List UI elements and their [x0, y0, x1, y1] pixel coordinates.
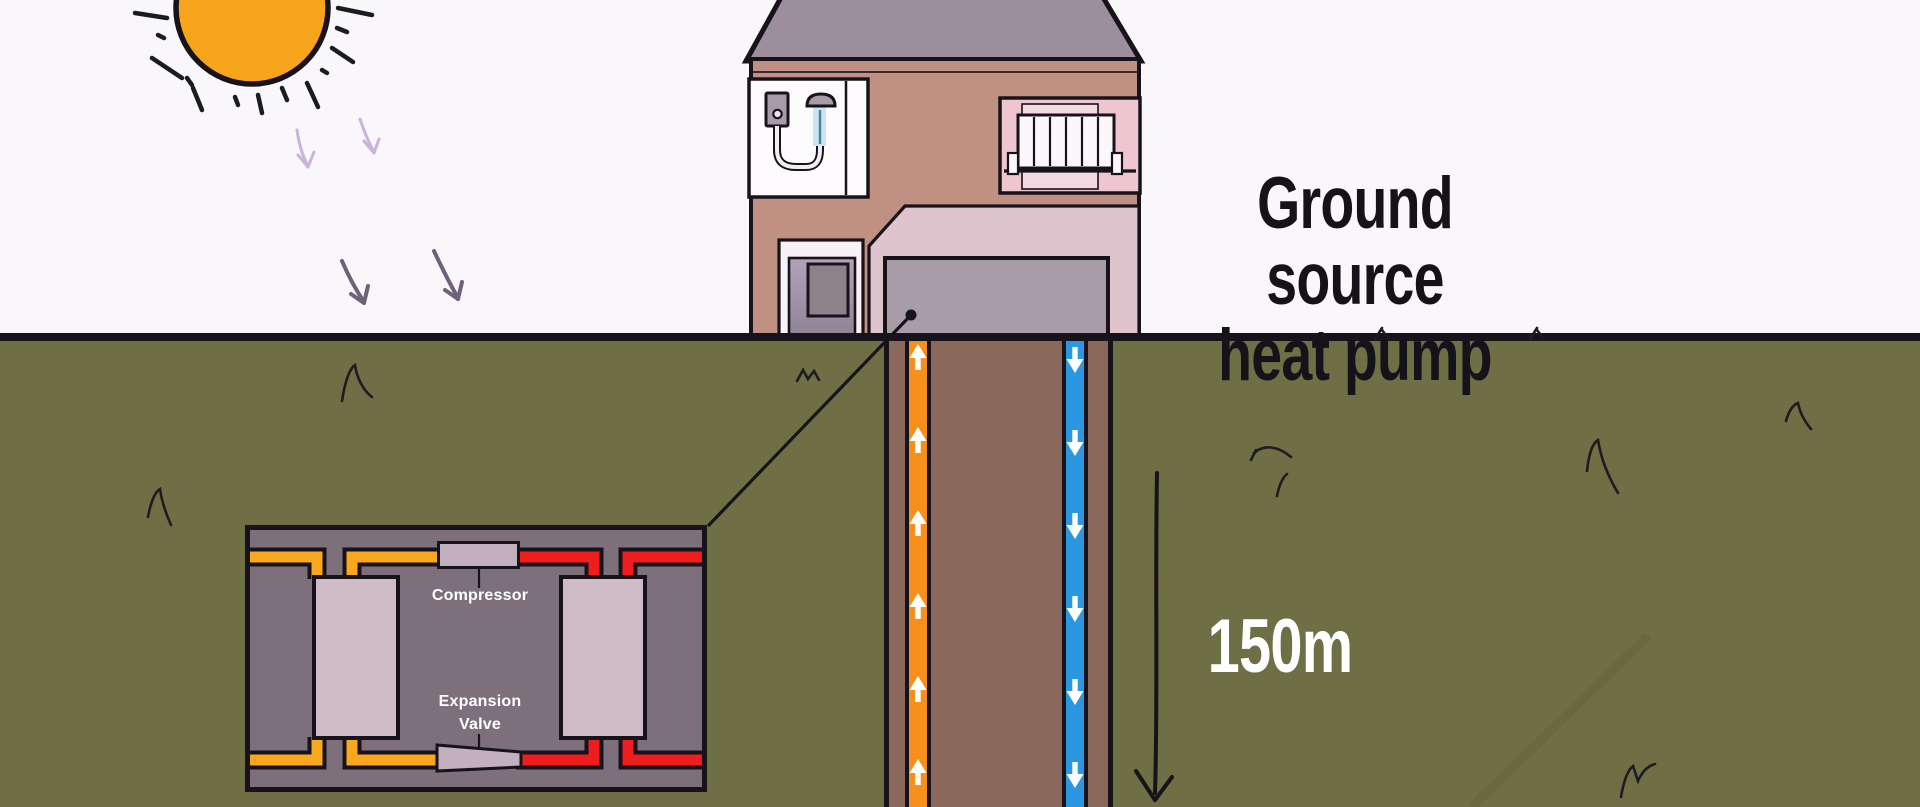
warm-flow-pipe-up	[905, 340, 931, 807]
radiator-room-cutaway	[1000, 98, 1140, 193]
heat-exchanger-evaporator	[312, 575, 400, 740]
expansion-valve-shape	[437, 745, 521, 771]
expansion-valve-label-line1: Expansion	[439, 690, 522, 713]
heat-pump-slab	[885, 258, 1108, 336]
roof	[746, 0, 1141, 61]
heat-pump-detail-box: Compressor Expansion Valve	[245, 525, 707, 792]
title-line2: heat pump	[1207, 318, 1503, 394]
diagram-title: Ground source heat pump	[1207, 166, 1503, 394]
compressor-shape	[437, 541, 520, 569]
borehole-trench	[884, 340, 1113, 807]
depth-label: 150m	[1181, 609, 1379, 685]
door-window	[808, 264, 848, 316]
radiator-valve-left	[1008, 153, 1018, 174]
cold-flow-pipe-down	[1062, 340, 1088, 807]
title-line1: Ground source	[1207, 166, 1503, 318]
expansion-valve-label: Expansion Valve	[439, 690, 522, 736]
ground-surface-line	[0, 333, 1920, 341]
expansion-valve-label-line2: Valve	[439, 713, 522, 736]
bathroom-cutaway	[749, 79, 868, 197]
front-door	[779, 240, 863, 336]
shower-icon	[807, 94, 835, 106]
water-heater-dial	[773, 110, 781, 118]
compressor-label: Compressor	[432, 587, 528, 605]
radiator-valve-right	[1112, 153, 1122, 174]
ground-source-heat-pump-diagram: Compressor Expansion Valve	[0, 0, 1920, 807]
house	[730, 0, 1160, 345]
heat-exchanger-condenser	[559, 575, 647, 740]
